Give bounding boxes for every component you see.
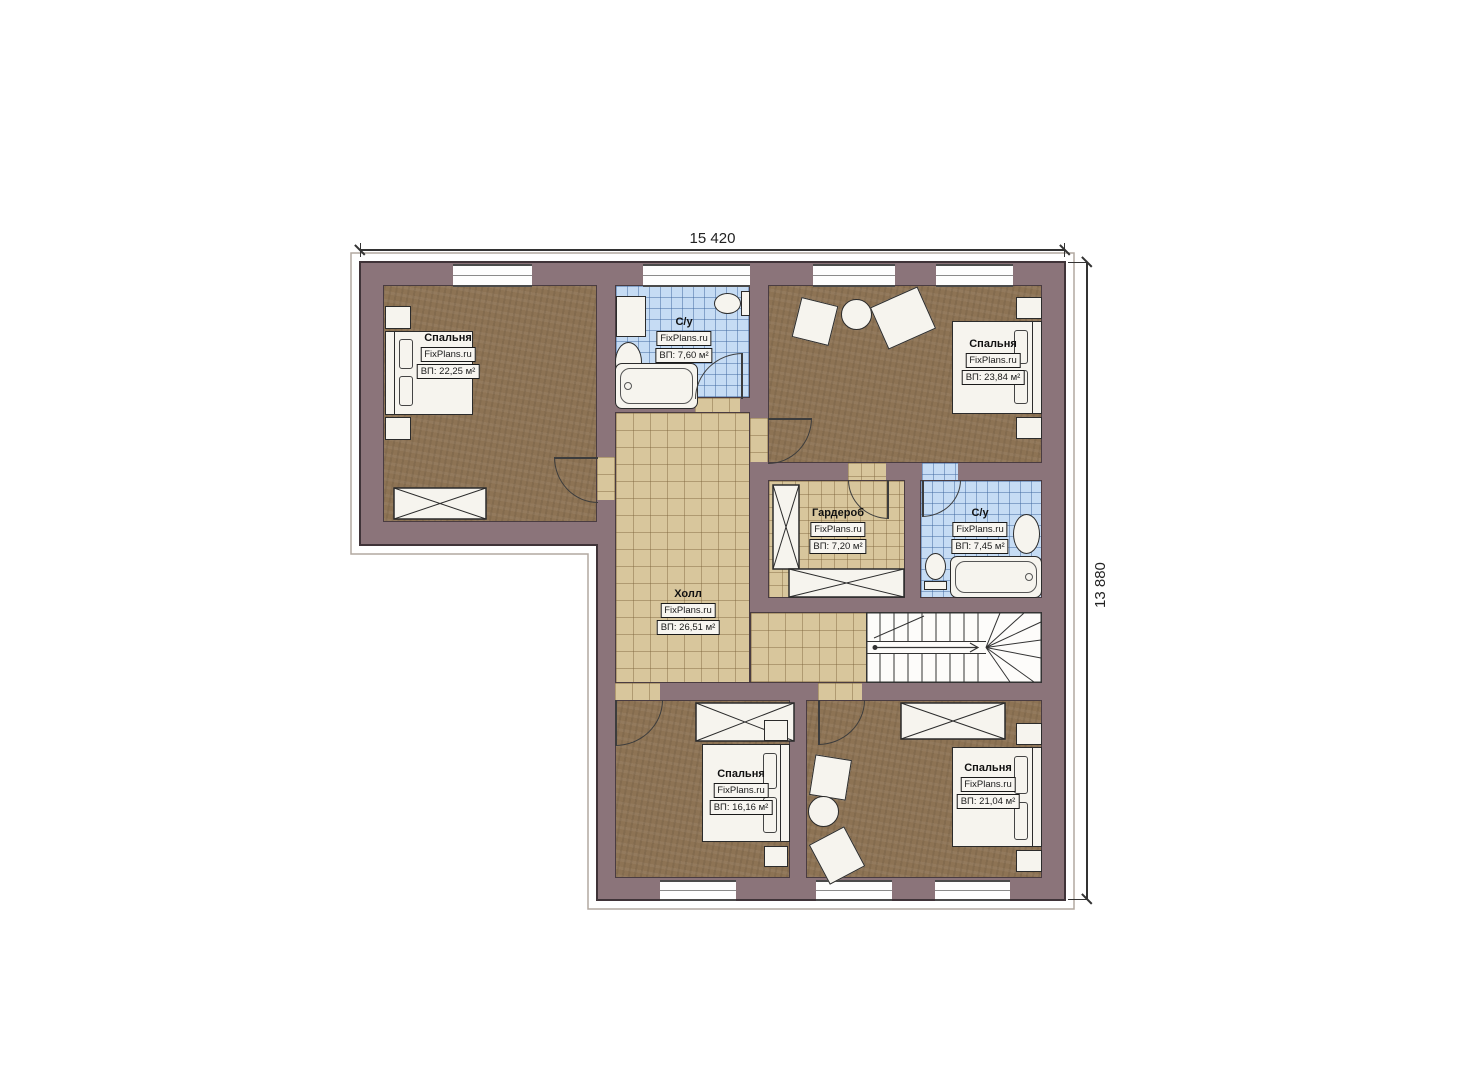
nightstand xyxy=(764,720,788,741)
nightstand xyxy=(1016,297,1042,319)
area-box: ВП: 21,04 м² xyxy=(957,794,1020,809)
bathtub xyxy=(615,363,698,409)
brand-box: FixPlans.ru xyxy=(952,522,1008,537)
brand-box: FixPlans.ru xyxy=(960,777,1016,792)
room-label-bathroom-right: С/у FixPlans.ru ВП: 7,45 м² xyxy=(951,507,1008,554)
room-name: С/у xyxy=(675,316,692,329)
room-label-bedroom-bottom-left: Спальня FixPlans.ru ВП: 16,16 м² xyxy=(710,768,773,815)
toilet-bowl xyxy=(925,553,946,580)
door-gap-bathroom-right xyxy=(922,463,958,480)
room-label-bedroom-bottom-right: Спальня FixPlans.ru ВП: 21,04 м² xyxy=(957,762,1020,809)
toilet-tank xyxy=(741,291,750,316)
area-box: ВП: 7,45 м² xyxy=(951,539,1008,554)
window-bottom-1 xyxy=(660,880,736,901)
brand-box: FixPlans.ru xyxy=(660,603,716,618)
door-gap-bathroom-top xyxy=(695,398,740,412)
room-label-bedroom-top-left: Спальня FixPlans.ru ВП: 22,25 м² xyxy=(417,332,480,379)
area-box: ВП: 23,84 м² xyxy=(962,370,1025,385)
room-label-hall: Холл FixPlans.ru ВП: 26,51 м² xyxy=(657,588,720,635)
window-top-3 xyxy=(813,264,895,287)
bathtub-drain xyxy=(1025,573,1033,581)
area-box: ВП: 7,60 м² xyxy=(655,348,712,363)
brand-box: FixPlans.ru xyxy=(713,783,769,798)
room-floor-hall-main xyxy=(615,412,750,683)
window-top-2 xyxy=(643,264,750,287)
brand-box: FixPlans.ru xyxy=(810,522,866,537)
sink xyxy=(1013,514,1040,554)
armchair xyxy=(809,754,852,800)
nightstand xyxy=(1016,850,1042,872)
door-gap-wardrobe xyxy=(848,463,886,480)
wardrobe-cabinet xyxy=(772,484,800,570)
room-name: Спальня xyxy=(969,338,1017,351)
nightstand xyxy=(1016,723,1042,745)
window-bottom-2 xyxy=(816,880,892,901)
nightstand xyxy=(764,846,788,867)
area-box: ВП: 7,20 м² xyxy=(809,539,866,554)
headboard xyxy=(780,745,789,841)
dimension-ext-line xyxy=(1068,262,1086,263)
window-bottom-3 xyxy=(935,880,1010,901)
bathtub-drain xyxy=(624,382,632,390)
dimension-label-top: 15 420 xyxy=(360,230,1065,247)
washing-machine xyxy=(616,296,646,337)
room-label-bedroom-top-right: Спальня FixPlans.ru ВП: 23,84 м² xyxy=(962,338,1025,385)
brand-box: FixPlans.ru xyxy=(656,331,712,346)
door-gap-bedroom-bottom-left xyxy=(615,683,660,700)
room-label-wardrobe: Гардероб FixPlans.ru ВП: 7,20 м² xyxy=(809,507,866,554)
headboard xyxy=(386,332,395,414)
room-name: Спальня xyxy=(964,762,1012,775)
brand-box: FixPlans.ru xyxy=(420,347,476,362)
nightstand xyxy=(385,417,411,440)
window-top-4 xyxy=(936,264,1013,287)
wardrobe-cabinet xyxy=(788,568,905,598)
dimension-line-right xyxy=(1086,262,1088,900)
nightstand xyxy=(385,306,411,329)
headboard xyxy=(1032,748,1041,846)
room-name: Гардероб xyxy=(812,507,864,520)
bathtub xyxy=(950,556,1042,598)
toilet-bowl xyxy=(714,293,741,314)
room-name: С/у xyxy=(971,507,988,520)
room-name: Спальня xyxy=(424,332,472,345)
door-gap-bedroom-top-right xyxy=(750,418,768,462)
pillow xyxy=(399,376,413,406)
dimension-ext-line xyxy=(1068,899,1086,900)
door-gap-bedroom-bottom-right xyxy=(818,683,862,700)
area-box: ВП: 26,51 м² xyxy=(657,620,720,635)
wardrobe-cabinet xyxy=(900,702,1006,740)
round-table xyxy=(808,796,839,827)
window-top-1 xyxy=(453,264,532,287)
pillow xyxy=(399,339,413,369)
room-name: Спальня xyxy=(717,768,765,781)
brand-box: FixPlans.ru xyxy=(965,353,1021,368)
dimension-line-top xyxy=(360,249,1065,251)
floor-plan-canvas: Спальня FixPlans.ru ВП: 22,25 м² С/у Fix… xyxy=(0,0,1473,1080)
headboard xyxy=(1032,322,1041,413)
toilet-tank xyxy=(924,581,947,590)
wardrobe-cabinet xyxy=(393,487,487,520)
door-gap-bedroom-top-left xyxy=(597,457,615,500)
dimension-label-right: 13 880 xyxy=(1092,562,1109,608)
area-box: ВП: 22,25 м² xyxy=(417,364,480,379)
staircase xyxy=(866,612,1042,683)
nightstand xyxy=(1016,417,1042,439)
room-label-bathroom-top: С/у FixPlans.ru ВП: 7,60 м² xyxy=(655,316,712,363)
area-box: ВП: 16,16 м² xyxy=(710,800,773,815)
round-table xyxy=(841,299,872,330)
room-name: Холл xyxy=(674,588,702,601)
